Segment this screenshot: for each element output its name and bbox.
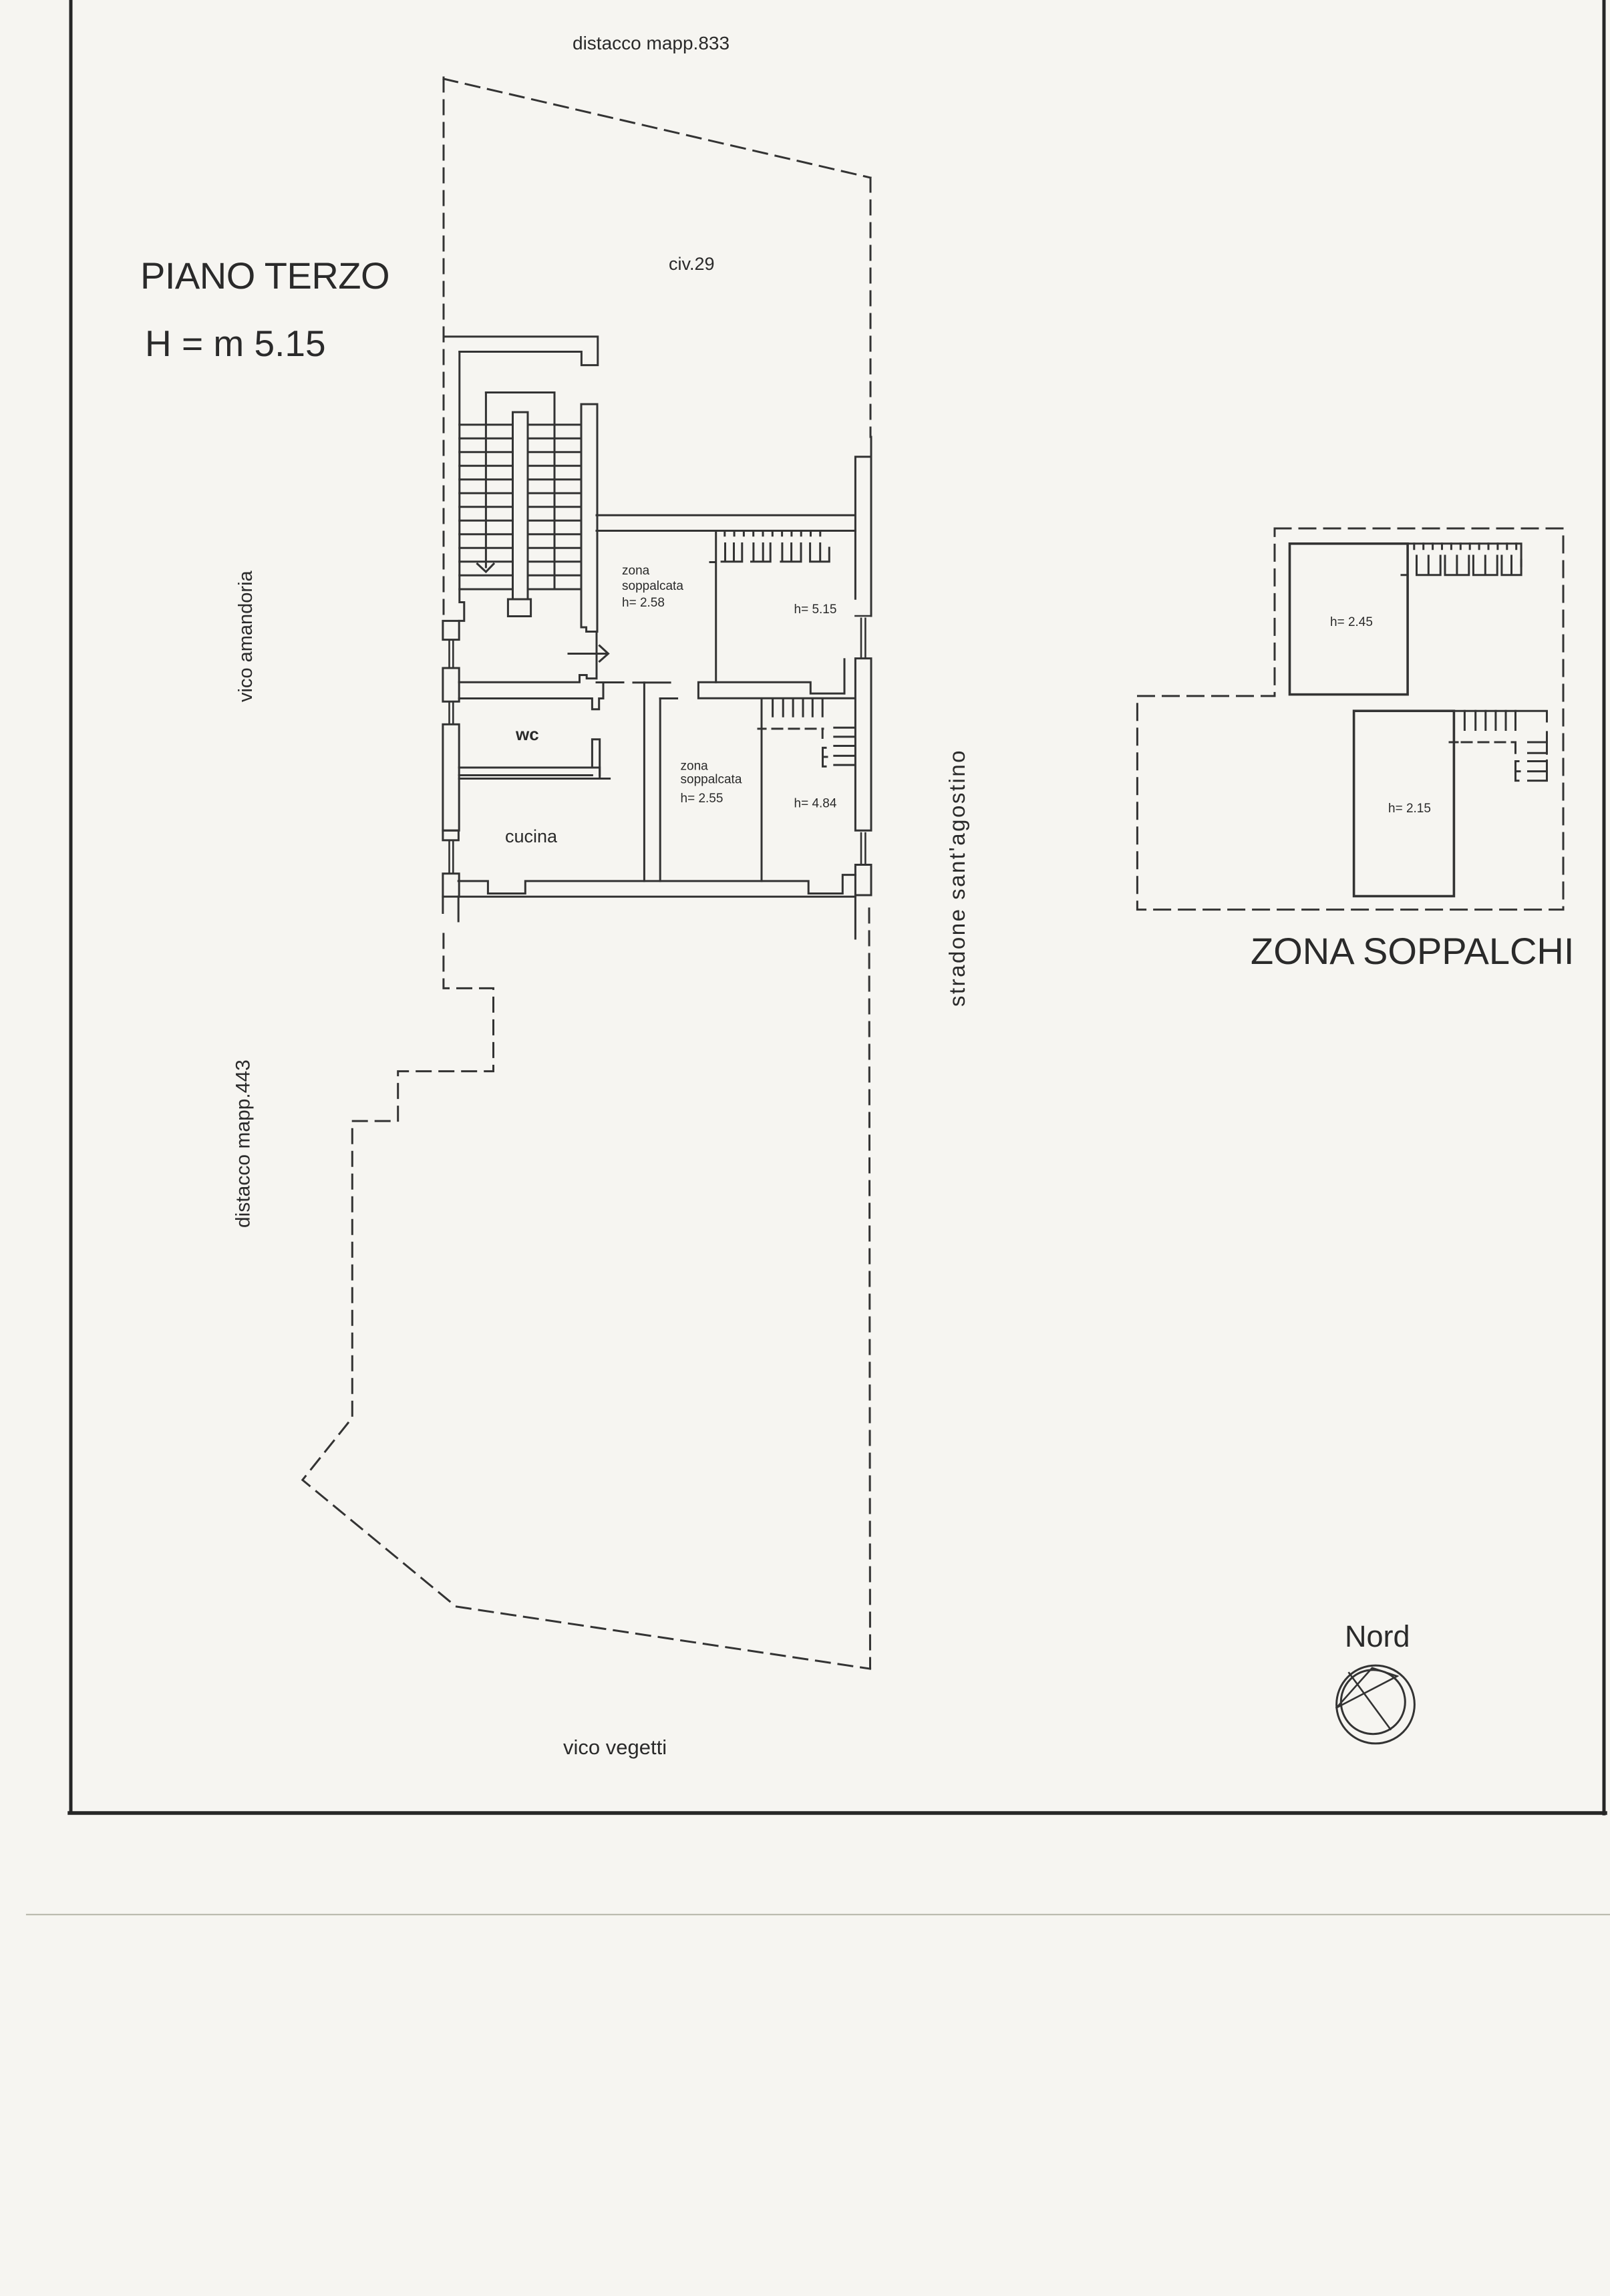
svg-text:h= 2.15: h= 2.15 (1388, 802, 1431, 816)
svg-text:zona: zona (622, 564, 650, 578)
svg-text:PIANO TERZO: PIANO TERZO (140, 255, 389, 297)
svg-text:soppalcata: soppalcata (681, 773, 742, 787)
svg-text:h= 2.55: h= 2.55 (681, 792, 723, 806)
svg-text:H = m 5.15: H = m 5.15 (145, 323, 326, 364)
svg-text:h= 2.58: h= 2.58 (622, 596, 665, 610)
svg-text:civ.29: civ.29 (669, 254, 715, 274)
svg-text:vico vegetti: vico vegetti (563, 1736, 667, 1759)
svg-text:soppalcata: soppalcata (622, 579, 683, 593)
svg-text:h= 2.45: h= 2.45 (1330, 615, 1373, 629)
svg-text:cucina: cucina (505, 826, 558, 846)
svg-text:zona: zona (681, 760, 709, 774)
svg-text:ZONA SOPPALCHI: ZONA SOPPALCHI (1251, 930, 1574, 972)
svg-text:vico amandoria: vico amandoria (235, 570, 257, 702)
svg-text:h= 4.84: h= 4.84 (794, 797, 837, 811)
svg-text:Nord: Nord (1345, 1619, 1410, 1653)
svg-text:h= 5.15: h= 5.15 (794, 603, 837, 617)
svg-text:wc: wc (515, 724, 539, 744)
svg-text:stradone sant'agostino: stradone sant'agostino (945, 749, 969, 1007)
svg-text:distacco mapp.443: distacco mapp.443 (232, 1059, 255, 1228)
svg-text:distacco mapp.833: distacco mapp.833 (573, 33, 730, 53)
